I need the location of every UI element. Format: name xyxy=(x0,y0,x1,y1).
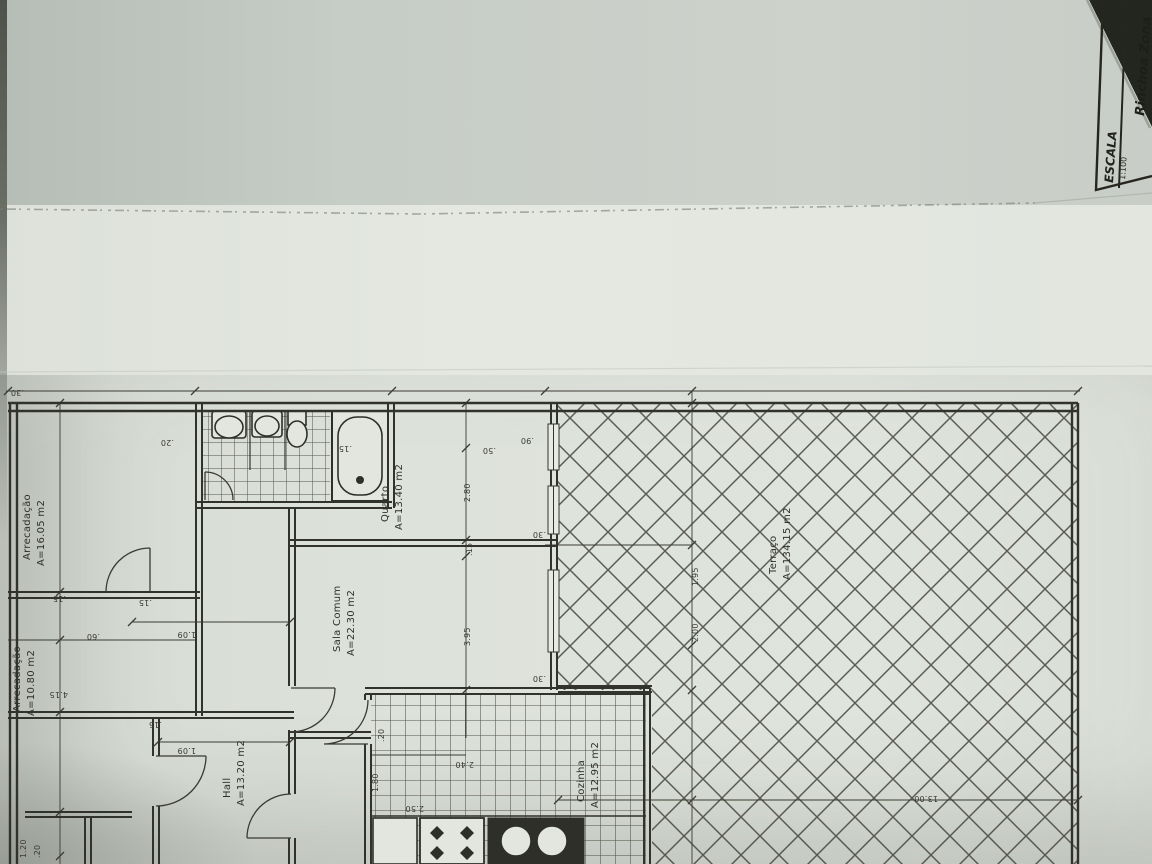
kitchen-cabinet xyxy=(373,818,417,864)
title-block-scale-label: ESCALA xyxy=(1102,130,1120,183)
room-area-cozinha: A=12.95 m2 xyxy=(590,742,601,808)
room-area-sala-comum: A=22.30 m2 xyxy=(346,590,357,656)
kitchen-sink xyxy=(488,818,584,864)
dimension-label: 4.15 xyxy=(49,690,68,699)
dimension-label: .20 xyxy=(33,845,42,858)
room-area-quarto: A=13.40 m2 xyxy=(394,464,405,530)
dimension-label: .20 xyxy=(377,729,386,742)
photo-of-floor-plan: Arrecadação A=16.05 m2 Arrecadação A=10.… xyxy=(0,0,1152,864)
room-area-arrecadacao-1: A=16.05 m2 xyxy=(36,500,47,566)
dimension-label: .30 xyxy=(533,674,546,683)
dimension-label: .90 xyxy=(521,436,534,445)
title-block: ESCALA 1:100 Rinchoa Zona xyxy=(1087,0,1152,190)
dimension-label: 13.00 xyxy=(914,794,938,803)
dimension-label: 3.95 xyxy=(463,627,472,646)
room-label-arrecadacao-2: Arrecadação xyxy=(12,646,23,712)
door-arc xyxy=(291,688,335,732)
dimension-label: .50 xyxy=(483,446,496,455)
dimension-label: 2.00 xyxy=(691,623,700,642)
door-arc xyxy=(247,794,291,838)
kitchen xyxy=(371,694,646,864)
dimension-label: .30 xyxy=(533,530,546,539)
dimension-label: 1.09 xyxy=(177,746,196,755)
room-area-terraco: A=134.15 m2 xyxy=(782,507,793,580)
title-block-scale-value: 1:100 xyxy=(1118,157,1129,181)
sink xyxy=(212,411,246,438)
dimension-label: .20 xyxy=(161,438,174,447)
dimension-label: 1.20 xyxy=(19,839,28,858)
stove xyxy=(420,818,484,864)
fold-crease xyxy=(0,193,1152,372)
dimension-label: .15 xyxy=(149,720,162,729)
room-label-hall: Hall xyxy=(222,778,233,798)
dimension-label: 2.40 xyxy=(455,760,474,769)
dimension-label: .15 xyxy=(139,598,152,607)
room-label-arrecadacao-1: Arrecadação xyxy=(22,494,33,560)
room-area-hall: A=13.20 m2 xyxy=(236,740,247,806)
toilet xyxy=(287,411,307,447)
room-label-cozinha: Cozinha xyxy=(576,760,587,802)
dimension-label: .15 xyxy=(339,444,352,453)
dimension-label: 1.95 xyxy=(691,567,700,586)
floor-plan-svg: Arrecadação A=16.05 m2 Arrecadação A=10.… xyxy=(0,0,1152,864)
dimension-label: .15 xyxy=(53,594,66,603)
dimension-label: 2.50 xyxy=(405,804,424,813)
door-arc xyxy=(106,548,150,592)
dimension-label: 1.09 xyxy=(177,630,196,639)
dimension-label: 1.80 xyxy=(371,773,380,792)
dimension-label: .60 xyxy=(87,632,100,641)
sink xyxy=(252,411,282,437)
room-label-sala-comum: Sala Comum xyxy=(332,586,343,652)
door-arc xyxy=(156,756,206,806)
room-label-terraco: Terraço xyxy=(768,536,779,575)
dimension-label: .15 xyxy=(465,543,474,556)
title-block-location: Rinchoa Zona xyxy=(1133,16,1152,116)
room-label-quarto: Quarto xyxy=(380,486,391,522)
dimension-label: .30 xyxy=(11,388,24,397)
room-area-arrecadacao-2: A=10.80 m2 xyxy=(26,650,37,716)
dimension-label: 2.80 xyxy=(463,483,472,502)
